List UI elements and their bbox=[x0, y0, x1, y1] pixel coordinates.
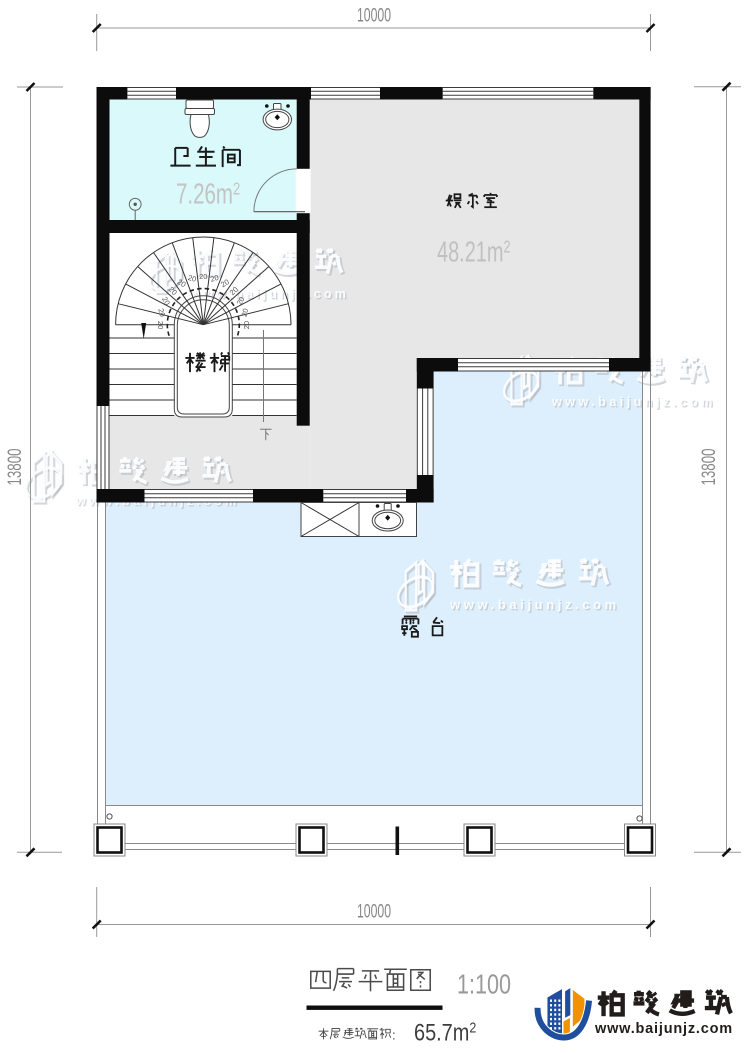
svg-text:www.baijunjz.com: www.baijunjz.com bbox=[551, 395, 716, 409]
svg-text:13800: 13800 bbox=[4, 448, 26, 485]
svg-text:10000: 10000 bbox=[357, 901, 391, 923]
svg-text:10000: 10000 bbox=[357, 5, 391, 27]
svg-text:20: 20 bbox=[199, 272, 207, 281]
svg-text:7.26m2: 7.26m2 bbox=[176, 179, 240, 210]
svg-text:1:100: 1:100 bbox=[457, 969, 511, 1000]
svg-text:www.baijunjz.com: www.baijunjz.com bbox=[594, 1021, 733, 1037]
svg-text::: : bbox=[392, 1028, 396, 1043]
svg-text:65.7m2: 65.7m2 bbox=[414, 1019, 476, 1046]
svg-text:13800: 13800 bbox=[698, 448, 720, 485]
svg-text:20: 20 bbox=[242, 321, 251, 329]
svg-text:48.21m2: 48.21m2 bbox=[437, 237, 510, 268]
svg-text:20: 20 bbox=[156, 321, 165, 329]
svg-text:www.baijunjz.com: www.baijunjz.com bbox=[449, 597, 620, 612]
